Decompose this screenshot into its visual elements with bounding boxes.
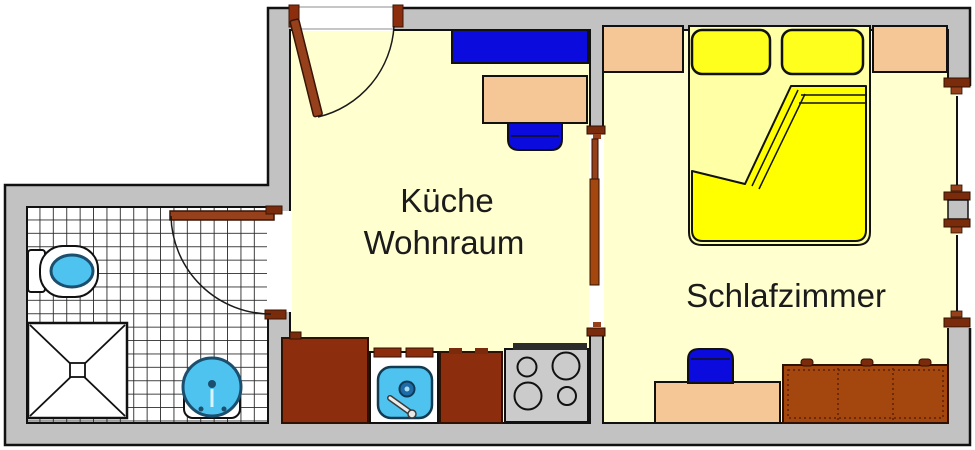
shower: [28, 323, 127, 418]
sink-faucet-knob: [408, 410, 416, 418]
burner-top-left: [518, 358, 537, 377]
bathroom-door-leaf: [170, 211, 274, 220]
washbasin: [183, 358, 241, 418]
toilet-bowl: [51, 255, 93, 287]
bedroom-label: Schlafzimmer: [686, 277, 886, 314]
base-cabinet-mid: [440, 348, 502, 423]
bathroom-door-opening: [267, 211, 292, 312]
shower-drain: [70, 363, 85, 377]
kitchen-label-line2: Wohnraum: [364, 224, 525, 261]
wardrobe: [783, 359, 948, 423]
nightstand-right: [873, 26, 947, 72]
bathroom-door-hinge: [266, 206, 282, 214]
toilet: [28, 246, 98, 297]
sliding-door-panel-2: [590, 179, 599, 285]
nightstand-left: [603, 26, 683, 72]
wardrobe-knob: [861, 359, 873, 366]
stove: [505, 343, 588, 422]
double-bed: [689, 26, 870, 245]
desk-chair: [688, 349, 733, 383]
window-mullion: [948, 200, 968, 219]
entrance-opening: [294, 5, 394, 31]
floor-plan: Küche Wohnraum Schlafzimmer: [0, 0, 975, 450]
dining-table: [483, 76, 587, 123]
wardrobe-knob: [801, 359, 813, 366]
floor-plan-canvas: Küche Wohnraum Schlafzimmer: [0, 0, 975, 450]
base-cabinet-left: [282, 332, 368, 423]
pillow-left: [692, 30, 770, 74]
burner-top-right: [553, 353, 580, 380]
burner-bottom-left: [515, 383, 542, 410]
kitchen-label-line1: Küche: [400, 182, 494, 219]
burner-bottom-right: [558, 387, 576, 405]
entrance-latch-post: [393, 5, 403, 27]
kitchen-sink-unit: [370, 348, 438, 423]
wardrobe-knob: [919, 359, 931, 366]
desk: [655, 382, 780, 423]
pillow-right: [782, 30, 863, 74]
sideboard: [452, 30, 588, 63]
